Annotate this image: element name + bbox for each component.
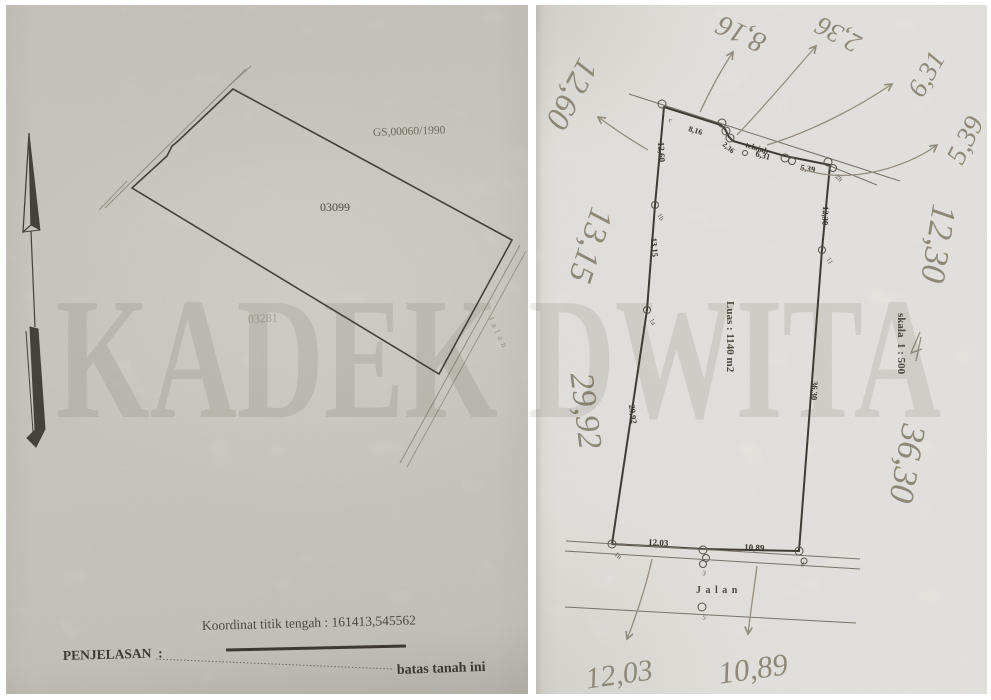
svg-text:KADEK DWITA: KADEK DWITA bbox=[56, 262, 941, 455]
